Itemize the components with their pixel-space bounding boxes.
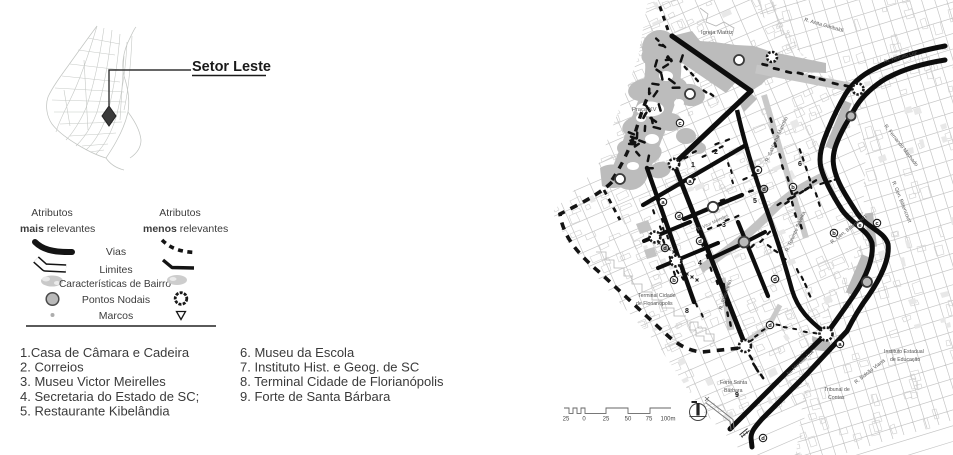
svg-text:d: d	[698, 239, 702, 245]
svg-text:4: 4	[698, 260, 702, 267]
svg-text:Vias: Vias	[106, 246, 126, 258]
svg-text:4. Secretaria do Estado de SC;: 4. Secretaria do Estado de SC;	[20, 389, 199, 404]
svg-text:d: d	[773, 277, 777, 283]
svg-text:2: 2	[714, 149, 718, 156]
svg-text:5: 5	[753, 198, 757, 205]
svg-text:6: 6	[798, 161, 802, 168]
svg-text:7: 7	[835, 200, 839, 207]
svg-text:Praça XV: Praça XV	[632, 107, 657, 113]
svg-text:Limites: Limites	[99, 264, 132, 276]
svg-text:8. Terminal Cidade de Florianó: 8. Terminal Cidade de Florianópolis	[240, 374, 444, 389]
svg-text:1.Casa de Câmara e Cadeira: 1.Casa de Câmara e Cadeira	[20, 345, 190, 360]
svg-text:Setor Leste: Setor Leste	[192, 59, 271, 75]
svg-text:8: 8	[685, 308, 689, 315]
svg-text:de Florianópolis: de Florianópolis	[636, 301, 673, 307]
svg-text:menos relevantes: menos relevantes	[143, 223, 228, 235]
svg-text:50: 50	[625, 417, 632, 423]
svg-text:75: 75	[646, 417, 653, 423]
svg-text:de Educação: de Educação	[890, 357, 920, 363]
svg-text:Contas: Contas	[828, 395, 845, 401]
svg-text:d: d	[677, 214, 681, 220]
svg-text:Atributos: Atributos	[31, 207, 72, 219]
svg-text:Pontos Nodais: Pontos Nodais	[82, 294, 150, 306]
svg-text:mais relevantes: mais relevantes	[20, 223, 95, 235]
svg-text:Tribunal de: Tribunal de	[824, 387, 850, 393]
svg-text:1: 1	[691, 162, 695, 169]
svg-text:7. Instituto Hist. e Geog. de: 7. Instituto Hist. e Geog. de SC	[240, 360, 419, 375]
svg-text:3: 3	[722, 222, 726, 229]
svg-text:2. Correios: 2. Correios	[20, 360, 84, 375]
svg-text:b: b	[672, 278, 676, 284]
svg-text:Características de Bairro: Características de Bairro	[59, 279, 171, 290]
svg-text:Instituto Estadual: Instituto Estadual	[884, 349, 924, 355]
svg-text:Atributos: Atributos	[159, 207, 200, 219]
svg-text:Bárbara: Bárbara	[724, 388, 743, 394]
svg-text:d: d	[761, 436, 765, 442]
svg-text:d: d	[663, 246, 667, 252]
svg-text:d: d	[768, 323, 772, 329]
svg-text:d: d	[762, 187, 766, 193]
svg-text:Forte Santa: Forte Santa	[720, 380, 747, 386]
svg-text:b: b	[791, 185, 795, 191]
svg-text:Igreja Matriz: Igreja Matriz	[701, 30, 733, 36]
svg-text:6. Museu da Escola: 6. Museu da Escola	[240, 345, 355, 360]
svg-text:5. Restaurante Kibelândia: 5. Restaurante Kibelândia	[20, 403, 170, 418]
svg-text:25: 25	[563, 417, 570, 423]
svg-text:25: 25	[603, 417, 610, 423]
svg-text:3. Museu Victor Meirelles: 3. Museu Victor Meirelles	[20, 374, 166, 389]
svg-text:9. Forte de Santa Bárbara: 9. Forte de Santa Bárbara	[240, 389, 391, 404]
svg-text:100m: 100m	[660, 417, 675, 423]
svg-text:Terminal Cidade: Terminal Cidade	[638, 293, 676, 299]
svg-text:Marcos: Marcos	[99, 310, 133, 322]
